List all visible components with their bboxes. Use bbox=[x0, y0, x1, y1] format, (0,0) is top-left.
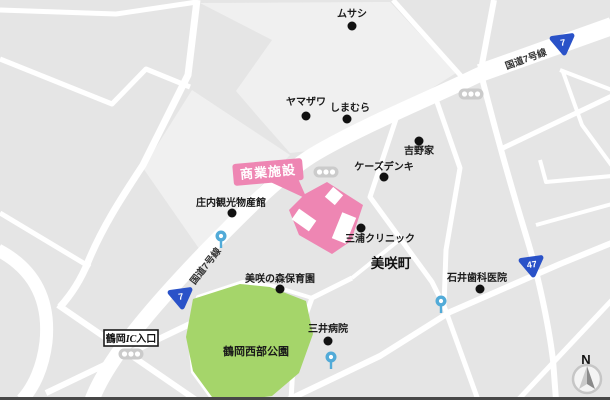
poi-label: 三浦クリニック bbox=[345, 232, 415, 245]
ic-entrance-label: 鶴岡IC入口 bbox=[104, 330, 158, 346]
poi-label: 石井歯科医院 bbox=[446, 271, 507, 284]
town-label: 美咲町 bbox=[371, 255, 412, 271]
poi-label: 吉野家 bbox=[404, 144, 435, 157]
poi-label: ヤマザワ bbox=[286, 96, 326, 108]
poi-label: 美咲の森保育園 bbox=[245, 272, 315, 285]
poi-dot bbox=[228, 209, 237, 218]
poi-dot bbox=[476, 285, 485, 294]
poi-dot bbox=[357, 224, 366, 233]
poi-label: 三井病院 bbox=[308, 322, 348, 335]
poi-dot bbox=[380, 173, 389, 182]
poi-dot bbox=[343, 115, 352, 124]
poi-label: 庄内観光物産館 bbox=[196, 196, 266, 209]
svg-text:鶴岡IC入口: 鶴岡IC入口 bbox=[106, 332, 157, 345]
poi-dot bbox=[348, 22, 357, 31]
map-svg: 鶴岡西部公園 ムサシヤマザワしまむら吉野家ケーズデンキ庄内観光物産館三浦クリニッ… bbox=[0, 0, 610, 400]
poi-dot bbox=[415, 137, 424, 146]
map-canvas: 鶴岡西部公園 ムサシヤマザワしまむら吉野家ケーズデンキ庄内観光物産館三浦クリニッ… bbox=[0, 0, 610, 400]
route-shield-number: 47 bbox=[526, 259, 537, 270]
traffic-light-icon bbox=[314, 167, 339, 178]
poi-dot bbox=[276, 285, 285, 294]
traffic-light-icon bbox=[459, 89, 484, 100]
poi-label: しまむら bbox=[330, 102, 370, 114]
poi-dot bbox=[324, 337, 333, 346]
poi-dot bbox=[302, 112, 311, 121]
park-label: 鶴岡西部公園 bbox=[223, 344, 289, 358]
poi-label: ケーズデンキ bbox=[354, 160, 414, 173]
poi-label: ムサシ bbox=[337, 8, 367, 20]
traffic-light-icon bbox=[119, 349, 144, 360]
